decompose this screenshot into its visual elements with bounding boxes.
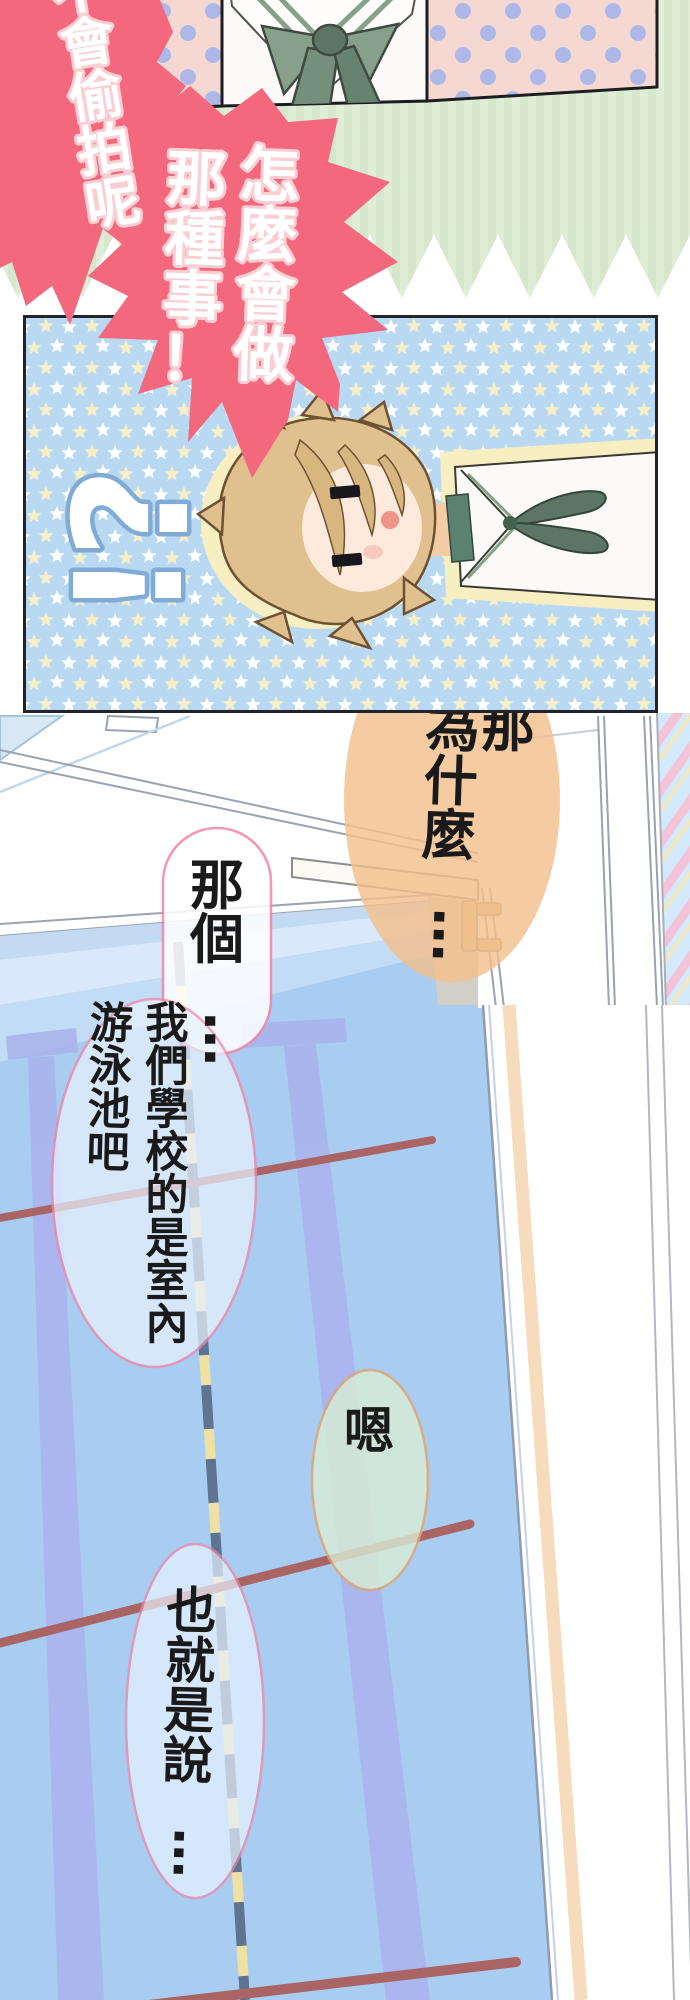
pool-scene: 那 為什麼… 那個… 我們學校的是室內 游泳池吧 嗯 也就是說… [0,713,690,2000]
dialogue-school-right: 我們學校的是室內 [145,999,189,1350]
shout-text-main-right-column: 怎麼會做 [231,140,302,392]
ceiling-light-fixture [106,716,158,732]
dialogue-why-right: 那 [481,713,535,759]
blush [381,511,399,529]
shout-text-main-left-column: 那種事！ [159,144,228,396]
sfx-exclamation-mark: ! [44,551,216,619]
dialogue-yeah: 嗯 [344,1402,394,1460]
dialogue-school-left: 游泳池吧 [86,998,134,1178]
manga-page: ? ! 不會偷拍呢 怎麼會做 那種事！ [0,0,690,2000]
shout-bubbles-layer: 不會偷拍呢 怎麼會做 那種事！ [0,0,690,500]
